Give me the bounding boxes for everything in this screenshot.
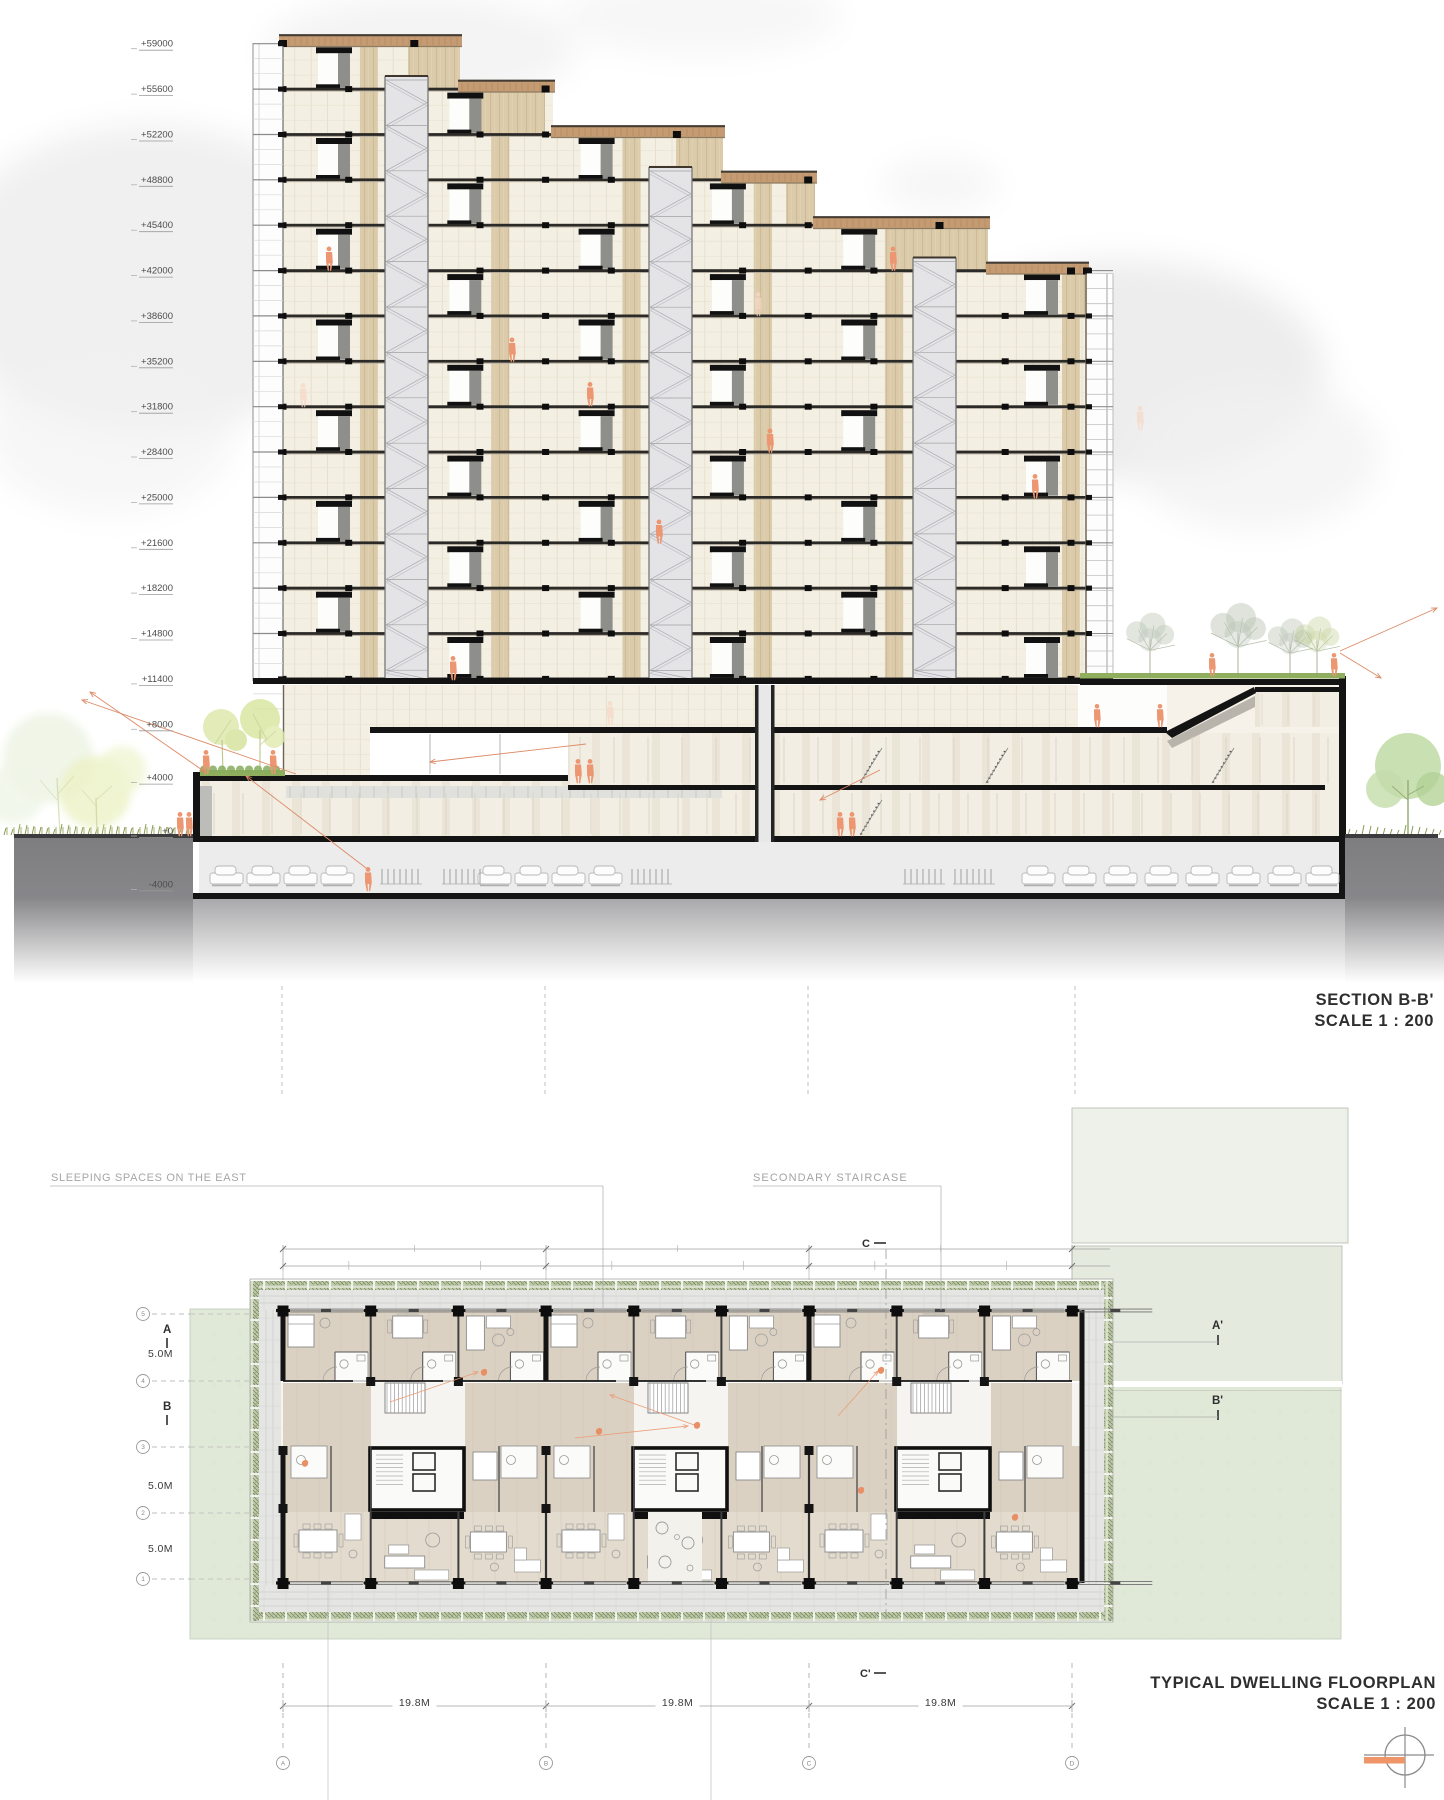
svg-text:1: 1 — [141, 1576, 145, 1583]
svg-text:+18200: +18200 — [141, 583, 173, 594]
svg-text:5.0M: 5.0M — [148, 1543, 173, 1555]
svg-text:+42000: +42000 — [141, 266, 173, 277]
svg-text:+48800: +48800 — [141, 175, 173, 186]
svg-text:+21600: +21600 — [141, 538, 173, 549]
svg-text:SCALE 1 : 200: SCALE 1 : 200 — [1316, 1695, 1436, 1713]
svg-text:C: C — [862, 1238, 870, 1250]
svg-text:+31800: +31800 — [141, 402, 173, 413]
svg-text:+11400: +11400 — [142, 674, 173, 685]
svg-text:+28400: +28400 — [141, 447, 173, 458]
svg-text:5.0M: 5.0M — [148, 1480, 173, 1492]
svg-text:+8000: +8000 — [146, 719, 173, 730]
svg-text:3: 3 — [141, 1444, 145, 1451]
svg-text:SLEEPING SPACES ON THE EAST: SLEEPING SPACES ON THE EAST — [51, 1172, 247, 1184]
svg-text:+55600: +55600 — [141, 84, 173, 95]
svg-text:4: 4 — [141, 1378, 145, 1385]
svg-text:C: C — [807, 1761, 812, 1768]
svg-text:+52200: +52200 — [141, 130, 173, 141]
svg-text:SECONDARY STAIRCASE: SECONDARY STAIRCASE — [753, 1172, 908, 1184]
svg-text:+0: +0 — [162, 826, 173, 837]
svg-text:A: A — [163, 1324, 171, 1336]
svg-text:19.8M: 19.8M — [399, 1697, 430, 1709]
svg-text:+14800: +14800 — [141, 629, 173, 640]
svg-text:2: 2 — [141, 1510, 145, 1517]
svg-text:SCALE 1 : 200: SCALE 1 : 200 — [1314, 1012, 1434, 1030]
svg-text:-4000: -4000 — [149, 879, 173, 890]
svg-text:19.8M: 19.8M — [925, 1697, 956, 1709]
svg-text:A': A' — [1212, 1320, 1223, 1332]
svg-text:+59000: +59000 — [141, 39, 173, 50]
svg-text:+25000: +25000 — [141, 492, 173, 503]
svg-text:+35200: +35200 — [141, 356, 173, 367]
svg-text:+45400: +45400 — [141, 220, 173, 231]
svg-text:+38600: +38600 — [141, 311, 173, 322]
svg-text:D: D — [1070, 1761, 1075, 1768]
svg-text:B': B' — [1212, 1395, 1223, 1407]
svg-text:19.8M: 19.8M — [662, 1697, 693, 1709]
svg-text:B: B — [163, 1401, 171, 1413]
svg-text:B: B — [544, 1761, 548, 1768]
svg-text:SECTION B-B': SECTION B-B' — [1316, 991, 1434, 1009]
svg-text:5: 5 — [141, 1311, 145, 1318]
svg-text:C': C' — [860, 1668, 871, 1680]
svg-text:+4000: +4000 — [146, 773, 173, 784]
svg-text:TYPICAL DWELLING FLOORPLAN: TYPICAL DWELLING FLOORPLAN — [1150, 1674, 1436, 1692]
svg-text:A: A — [281, 1761, 286, 1768]
svg-text:5.0M: 5.0M — [148, 1348, 173, 1360]
